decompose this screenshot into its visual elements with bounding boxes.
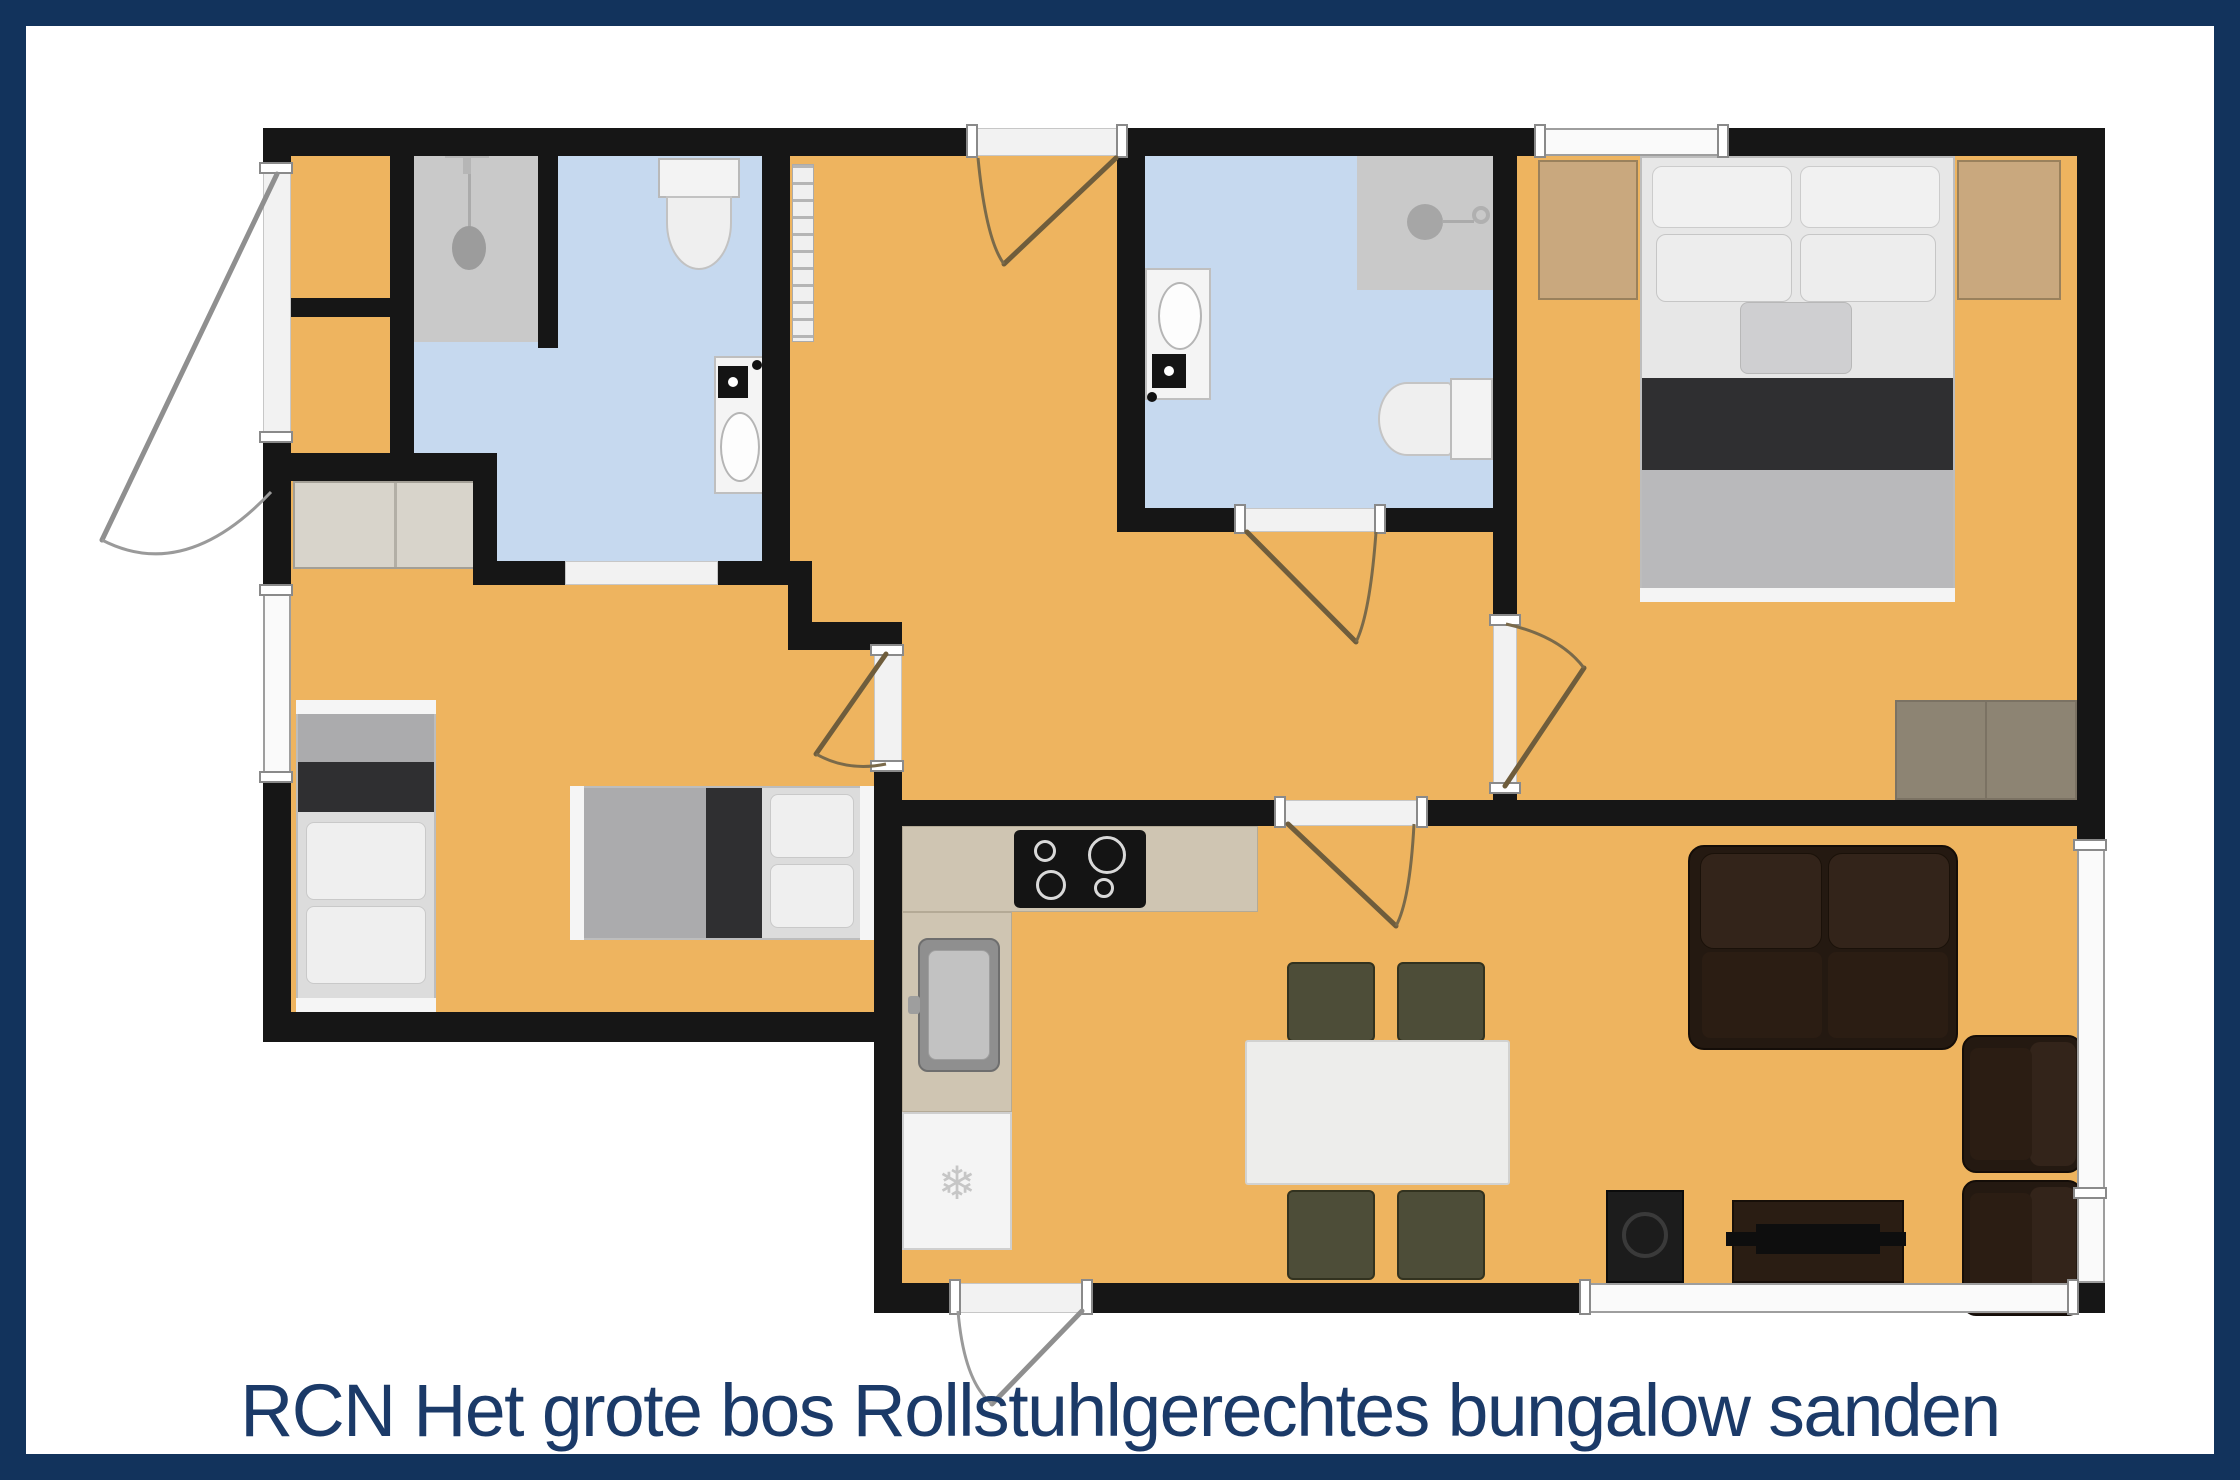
door-arc <box>978 158 1004 264</box>
door-leaf <box>816 654 886 754</box>
door-arc <box>1396 824 1414 926</box>
door-leaf <box>1505 668 1584 786</box>
door-arc <box>102 492 271 554</box>
door-arc <box>1356 532 1376 642</box>
door-swings <box>0 0 2240 1480</box>
door-leaf <box>1247 532 1356 642</box>
door-leaf <box>1288 824 1396 926</box>
door-leaf <box>1004 158 1116 264</box>
caption-title: RCN Het grote bos Rollstuhlgerechtes bun… <box>11 1368 2229 1453</box>
floor-plan-page: ❄ <box>0 0 2240 1480</box>
door-arc <box>1506 624 1584 668</box>
door-arc <box>816 754 886 766</box>
door-leaf <box>102 174 277 540</box>
